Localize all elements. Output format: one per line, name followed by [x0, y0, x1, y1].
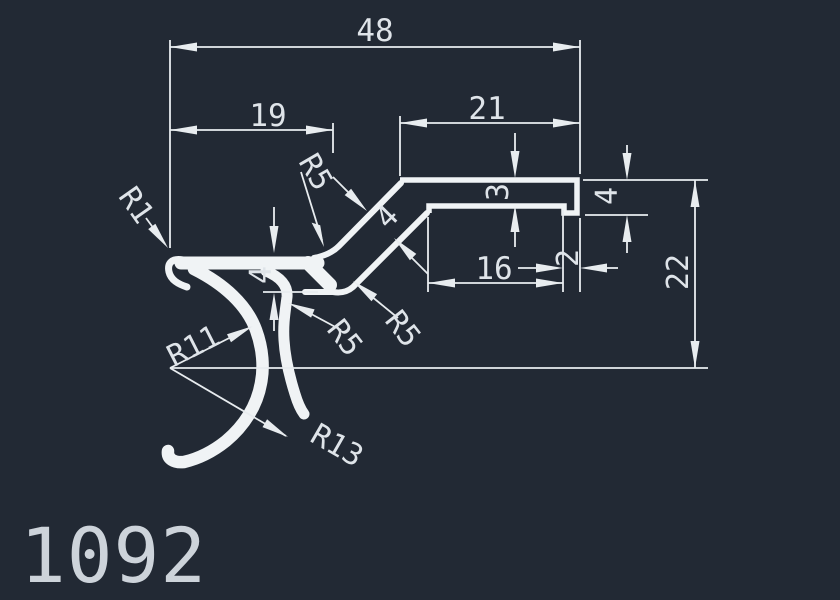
dim-diag-thickness-label: 4 [369, 199, 407, 237]
radius-under-fillet-label: R5 [320, 313, 370, 363]
arrowhead [536, 279, 563, 288]
arrowhead [288, 303, 315, 318]
arrowhead [553, 43, 580, 52]
radius-tip-label: R1 [111, 181, 160, 231]
arrowhead [691, 341, 700, 368]
arrowhead [148, 224, 168, 248]
arrowhead [170, 126, 197, 135]
arrowhead [623, 153, 632, 180]
arrowhead [312, 223, 324, 247]
dimension-labels: 48 19 21 16 2 3 4 22 4 4 [244, 13, 696, 290]
dim-flange-width-label: 21 [468, 91, 505, 127]
arrowhead [353, 281, 377, 301]
arrowhead [428, 279, 455, 288]
dim-lip-width-label: 2 [551, 249, 586, 267]
profile-junction [308, 263, 330, 285]
dim-arm-width-label: 19 [249, 98, 286, 134]
dim-overall-height-label: 22 [661, 254, 696, 290]
arrowhead [170, 43, 197, 52]
part-number-title: 1092 [20, 511, 207, 600]
radius-top-fillet-label: R5 [291, 148, 339, 197]
arrowhead [553, 119, 580, 128]
arrowhead [394, 238, 416, 260]
radius-hook-inner-label: R11 [162, 319, 226, 375]
dim-arm-stack-label: 4 [244, 266, 279, 284]
arrowhead [400, 119, 427, 128]
radius-hook-outer-label: R13 [305, 417, 369, 474]
arrowhead [270, 226, 279, 253]
arrowhead [623, 215, 632, 242]
radius-leaders [146, 172, 398, 437]
dim-flange-thickness-label: 3 [481, 183, 516, 201]
radius-diag-fillet-label: R5 [378, 304, 428, 354]
dim-groove-width-label: 16 [475, 251, 512, 287]
arrowhead [511, 151, 520, 178]
arrowhead [511, 205, 520, 232]
arrowhead [227, 326, 253, 342]
arrowhead [270, 293, 279, 320]
arrowhead [691, 180, 700, 207]
dim-tail-4d-bottom [410, 256, 428, 274]
dim-overall-width-label: 48 [356, 13, 393, 49]
arrowhead [306, 126, 333, 135]
arrowhead [263, 419, 289, 437]
arrowhead [345, 189, 367, 211]
dim-lip-thickness-label: 4 [590, 187, 625, 205]
cad-canvas[interactable]: 48 19 21 16 2 3 4 22 4 4 R1 R5 R5 R5 R11… [0, 0, 840, 600]
